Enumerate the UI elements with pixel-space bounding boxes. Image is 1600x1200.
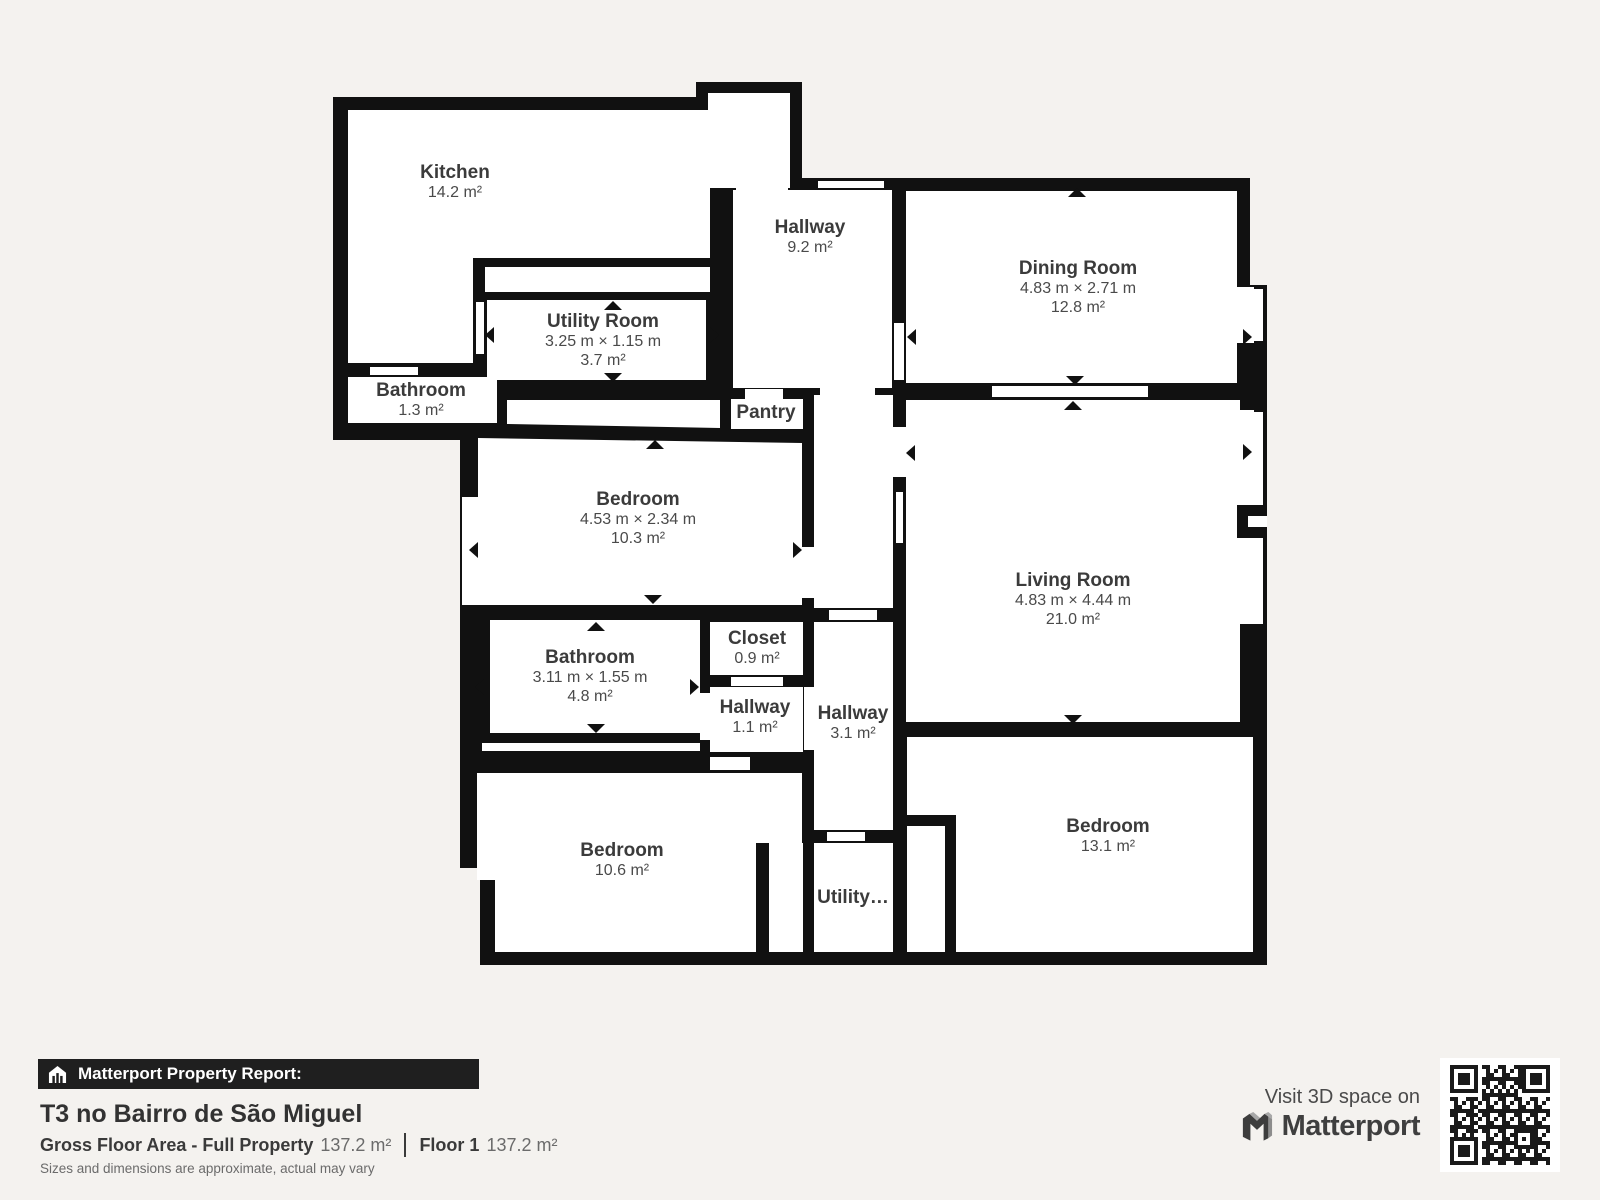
room-name: Bathroom (376, 381, 466, 401)
living-window-bay-1 (1237, 410, 1254, 507)
room-area: 4.8 m² (533, 687, 648, 706)
hallway-corridor-connector (820, 385, 875, 400)
room-area: 14.2 m² (420, 183, 490, 202)
room-area: 12.8 m² (1019, 298, 1137, 317)
room-label-bedroom-3: Bedroom 13.1 m² (1066, 817, 1149, 856)
qr-code (1440, 1058, 1560, 1172)
gross-area-value: 137.2 m² (320, 1135, 391, 1156)
pantry-door-slot (745, 389, 783, 399)
room-label-utility-small: Utility… (817, 888, 889, 908)
utility-gap-strip (485, 267, 710, 292)
room-label-utility: Utility Room 3.25 m × 1.15 m 3.7 m² (545, 312, 661, 370)
wall-gap-strip (482, 743, 700, 751)
living-right-window-1 (1254, 412, 1263, 505)
shaft-right (907, 826, 945, 952)
hallway-corridor-upper (814, 395, 893, 608)
room-dims: 4.83 m × 2.71 m (1019, 279, 1137, 298)
room-area: 1.1 m² (720, 718, 791, 737)
room-label-bedroom-2: Bedroom 10.6 m² (580, 841, 663, 880)
dining-left-door-slot (894, 323, 904, 380)
living-left-door-slot (893, 427, 906, 477)
room-label-living: Living Room 4.83 m × 4.44 m 21.0 m² (1015, 571, 1131, 629)
bedroom-1-door-slot (802, 547, 814, 598)
living-window-bay-2 (1237, 536, 1254, 624)
gross-area-label: Gross Floor Area - Full Property (40, 1135, 313, 1156)
disclaimer-text: Sizes and dimensions are approximate, ac… (40, 1161, 375, 1176)
room-label-bedroom-1: Bedroom 4.53 m × 2.34 m 10.3 m² (580, 490, 696, 548)
room-label-bathroom-main: Bathroom 3.11 m × 1.55 m 4.8 m² (533, 648, 648, 706)
room-label-hallway-main: Hallway 9.2 m² (775, 218, 846, 257)
living-notch-gap (1248, 516, 1267, 527)
visit-3d-text: Visit 3D space on (1265, 1086, 1420, 1109)
room-area: 10.3 m² (580, 529, 696, 548)
room-name: Bedroom (580, 841, 663, 861)
matterport-wordmark: Matterport (1282, 1110, 1420, 1143)
room-name: Dining Room (1019, 259, 1137, 279)
room-label-closet: Closet 0.9 m² (728, 629, 786, 668)
matterport-floorplan-page: Kitchen 14.2 m² Hallway 9.2 m² Dining Ro… (0, 0, 1600, 1200)
room-living-shape (906, 400, 1240, 722)
utility-small-door-slot (827, 832, 865, 841)
room-area: 3.7 m² (545, 351, 661, 370)
report-bar-label: Matterport Property Report: (78, 1064, 302, 1084)
utility-left-window (476, 302, 484, 354)
room-dims: 3.11 m × 1.55 m (533, 668, 648, 687)
room-area: 10.6 m² (580, 861, 663, 880)
room-area: 1.3 m² (376, 401, 466, 420)
living-right-window-2 (1254, 538, 1263, 624)
room-label-dining: Dining Room 4.83 m × 2.71 m 12.8 m² (1019, 259, 1137, 317)
info-divider (404, 1133, 406, 1157)
room-name: Utility… (817, 888, 889, 908)
room-name: Hallway (720, 698, 791, 718)
room-label-hallway-small: Hallway 1.1 m² (720, 698, 791, 737)
room-name: Closet (728, 629, 786, 649)
room-name: Kitchen (420, 163, 490, 183)
bedroom-2-door-slot (710, 757, 750, 770)
bathroom-main-door-slot (700, 693, 710, 740)
room-name: Bedroom (580, 490, 696, 510)
room-label-bathroom-small: Bathroom 1.3 m² (376, 381, 466, 420)
matterport-logo: Matterport (1241, 1110, 1420, 1143)
room-dims: 4.83 m × 4.44 m (1015, 591, 1131, 610)
room-area: 9.2 m² (775, 238, 846, 257)
room-name: Bathroom (533, 648, 648, 668)
dining-right-window (1254, 289, 1263, 341)
floor-value: 137.2 m² (486, 1135, 557, 1156)
room-name: Bedroom (1066, 817, 1149, 837)
bathroom-small-window (370, 367, 418, 375)
area-info-line: Gross Floor Area - Full Property 137.2 m… (40, 1133, 558, 1157)
room-label-pantry: Pantry (736, 403, 795, 423)
room-name: Hallway (818, 704, 889, 724)
room-name: Utility Room (545, 312, 661, 332)
hallway-top-window (818, 181, 884, 188)
floor-label: Floor 1 (419, 1135, 479, 1156)
qr-pattern (1450, 1065, 1550, 1165)
floor-plan (0, 0, 1600, 1200)
room-name: Living Room (1015, 571, 1131, 591)
property-title: T3 no Bairro de São Miguel (40, 1100, 362, 1129)
room-dims: 4.53 m × 2.34 m (580, 510, 696, 529)
room-name: Pantry (736, 403, 795, 423)
shaft-left (769, 843, 803, 952)
living-left-window (896, 492, 903, 543)
corridor-connect-slot (829, 610, 877, 620)
dining-living-opening (992, 386, 1148, 397)
room-dims: 3.25 m × 1.15 m (545, 332, 661, 351)
room-area: 0.9 m² (728, 649, 786, 668)
room-area: 21.0 m² (1015, 610, 1131, 629)
matterport-mark-icon (1241, 1111, 1273, 1143)
closet-door-slot (731, 677, 783, 686)
bathroom-corridor-strip (507, 400, 720, 428)
room-name: Hallway (775, 218, 846, 238)
report-header-bar: Matterport Property Report: (38, 1059, 479, 1089)
hallway-small-door-slot (804, 687, 814, 750)
room-area: 3.1 m² (818, 724, 889, 743)
property-house-icon (48, 1065, 67, 1084)
room-label-kitchen: Kitchen 14.2 m² (420, 163, 490, 202)
room-area: 13.1 m² (1066, 837, 1149, 856)
room-label-hallway-lower: Hallway 3.1 m² (818, 704, 889, 743)
